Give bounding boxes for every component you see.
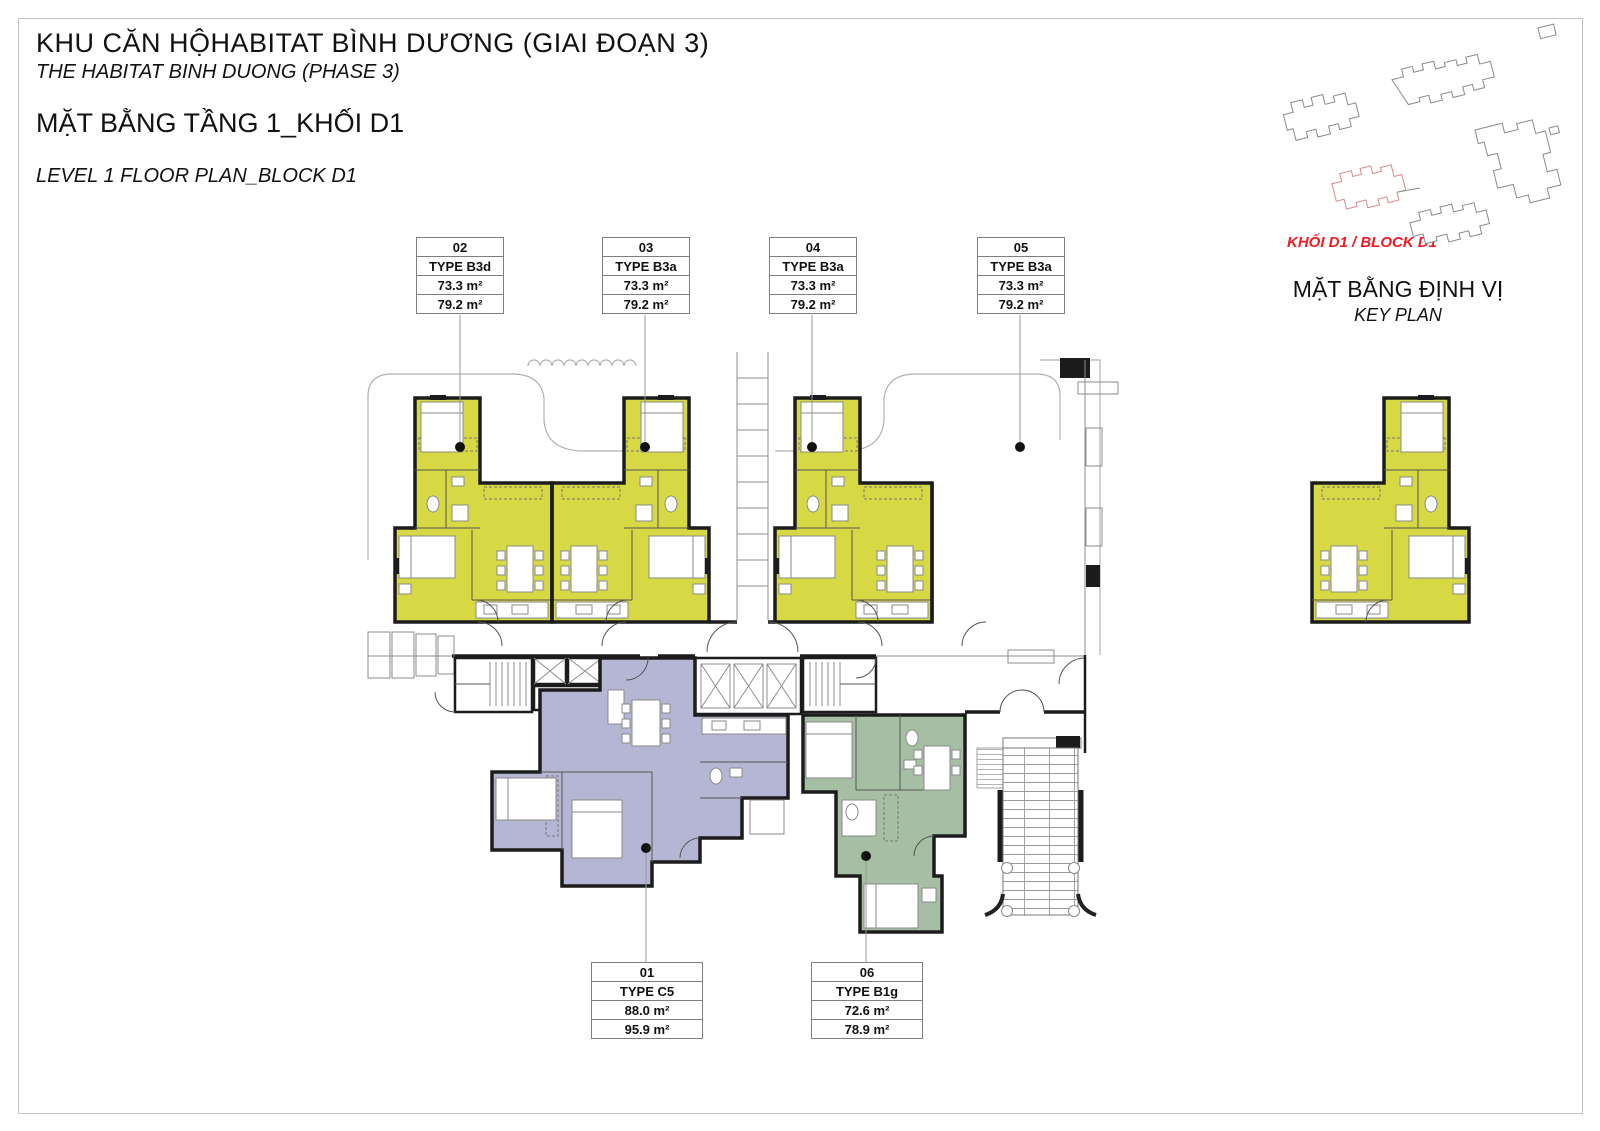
unit-area-net: 73.3 m² bbox=[978, 275, 1064, 294]
unit-02-shape bbox=[394, 395, 552, 622]
leader-dot bbox=[861, 851, 871, 861]
unit-label-04: 04 TYPE B3a 73.3 m² 79.2 m² bbox=[769, 237, 857, 314]
unit-type: TYPE B3d bbox=[417, 256, 503, 275]
unit-label-02: 02 TYPE B3d 73.3 m² 79.2 m² bbox=[416, 237, 504, 314]
unit-area-gross: 79.2 m² bbox=[770, 294, 856, 313]
leader-dot bbox=[455, 442, 465, 452]
unit-label-03: 03 TYPE B3a 73.3 m² 79.2 m² bbox=[602, 237, 690, 314]
unit-type: TYPE B3a bbox=[978, 256, 1064, 275]
elevator-bank bbox=[695, 658, 801, 714]
unit-number: 04 bbox=[770, 238, 856, 256]
unit-label-05: 05 TYPE B3a 73.3 m² 79.2 m² bbox=[977, 237, 1065, 314]
floor-plan-svg bbox=[0, 0, 1600, 1131]
unit-label-01: 01 TYPE C5 88.0 m² 95.9 m² bbox=[591, 962, 703, 1039]
unit-area-gross: 95.9 m² bbox=[592, 1019, 702, 1038]
adjacent-block-facade bbox=[1060, 358, 1118, 750]
unit-area-net: 88.0 m² bbox=[592, 1000, 702, 1019]
unit-number: 03 bbox=[603, 238, 689, 256]
unit-area-gross: 79.2 m² bbox=[417, 294, 503, 313]
leader-lines bbox=[455, 315, 1025, 962]
unit-05-shape bbox=[1312, 395, 1470, 622]
unit-area-gross: 79.2 m² bbox=[603, 294, 689, 313]
drawing-sheet: KHU CĂN HỘHABITAT BÌNH DƯƠNG (GIAI ĐOẠN … bbox=[0, 0, 1600, 1131]
keyplan-highlight-block bbox=[1330, 159, 1408, 215]
unit-area-net: 73.3 m² bbox=[603, 275, 689, 294]
leader-dot bbox=[807, 442, 817, 452]
unit-area-net: 72.6 m² bbox=[812, 1000, 922, 1019]
unit-06-shape bbox=[803, 715, 965, 932]
unit-number: 06 bbox=[812, 963, 922, 981]
unit-type: TYPE B3a bbox=[770, 256, 856, 275]
entrance-stair bbox=[977, 736, 1096, 917]
planter-row bbox=[368, 632, 454, 678]
unit-area-gross: 79.2 m² bbox=[978, 294, 1064, 313]
leader-dot bbox=[1015, 442, 1025, 452]
unit-number: 05 bbox=[978, 238, 1064, 256]
unit-area-net: 73.3 m² bbox=[770, 275, 856, 294]
unit-area-net: 73.3 m² bbox=[417, 275, 503, 294]
unit-label-06: 06 TYPE B1g 72.6 m² 78.9 m² bbox=[811, 962, 923, 1039]
stairwell-right bbox=[803, 658, 876, 712]
unit-04-shape bbox=[774, 395, 932, 622]
walkway bbox=[737, 352, 768, 620]
leader-dot bbox=[641, 843, 651, 853]
keyplan-drawing bbox=[1281, 24, 1563, 250]
stairwell-left bbox=[435, 658, 532, 712]
leader-dot bbox=[640, 442, 650, 452]
unit-type: TYPE B1g bbox=[812, 981, 922, 1000]
unit-type: TYPE C5 bbox=[592, 981, 702, 1000]
unit-type: TYPE B3a bbox=[603, 256, 689, 275]
unit-number: 02 bbox=[417, 238, 503, 256]
unit-area-gross: 78.9 m² bbox=[812, 1019, 922, 1038]
unit-03-shape bbox=[552, 395, 710, 622]
unit-number: 01 bbox=[592, 963, 702, 981]
